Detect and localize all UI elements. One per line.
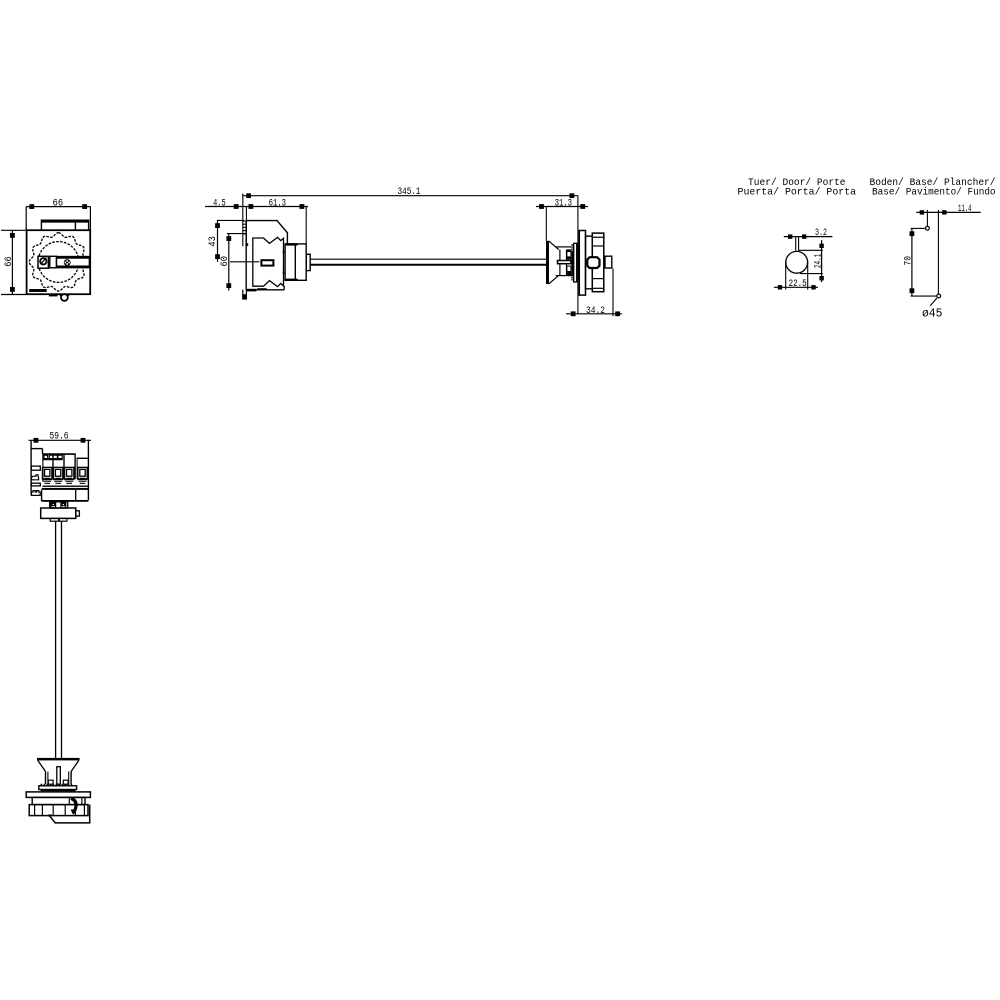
svg-text:Puerta/ Porta/ Porta: Puerta/ Porta/ Porta <box>738 187 857 199</box>
svg-text:66: 66 <box>4 256 15 267</box>
svg-text:11.4: 11.4 <box>958 204 972 215</box>
svg-text:24.1: 24.1 <box>813 254 824 269</box>
svg-text:59.6: 59.6 <box>50 432 69 443</box>
svg-text:3.2: 3.2 <box>815 228 827 239</box>
svg-text:4.5: 4.5 <box>213 198 226 209</box>
svg-text:31.3: 31.3 <box>555 198 572 209</box>
svg-text:22.5: 22.5 <box>789 279 807 290</box>
svg-text:ø45: ø45 <box>922 306 943 320</box>
svg-text:70: 70 <box>903 256 914 266</box>
svg-text:Base/ Pavimento/ Fundo: Base/ Pavimento/ Fundo <box>872 187 996 199</box>
svg-text:61.3: 61.3 <box>269 198 286 209</box>
svg-text:34.2: 34.2 <box>586 306 605 317</box>
svg-text:43: 43 <box>208 236 219 247</box>
svg-text:345.1: 345.1 <box>398 187 421 198</box>
svg-text:60: 60 <box>220 256 231 267</box>
svg-text:66: 66 <box>53 199 64 210</box>
